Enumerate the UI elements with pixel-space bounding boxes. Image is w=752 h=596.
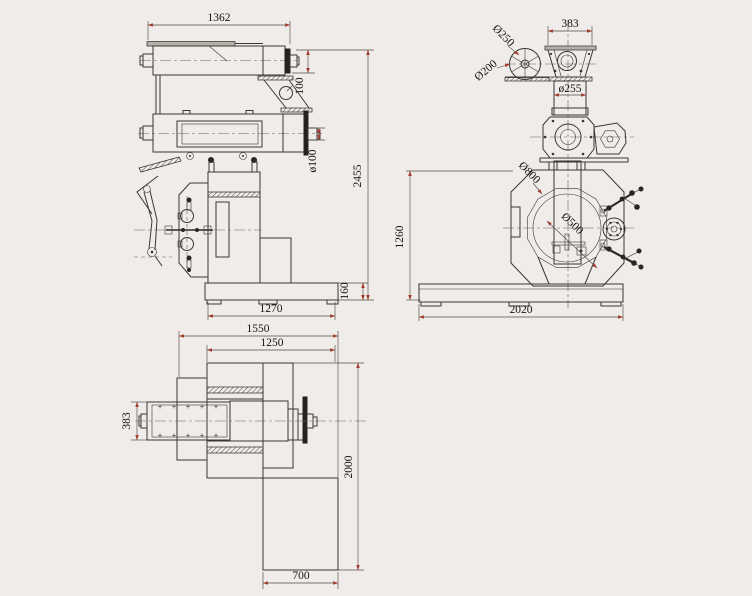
dim-label-160: 160 — [339, 282, 351, 300]
dim-label-1250: 1250 — [261, 337, 284, 349]
background — [0, 0, 752, 596]
dim-label-383-plan: 383 — [121, 412, 133, 430]
dim-label-d100: ø100 — [307, 149, 319, 172]
dim-label-1270: 1270 — [260, 303, 283, 315]
dim-label-1362: 1362 — [208, 12, 231, 24]
dim-label-383-front: 383 — [561, 18, 579, 30]
dim-label-1550: 1550 — [247, 323, 270, 335]
three-view-technical-drawing: 1362 100 — [0, 0, 752, 596]
dim-label-2455: 2455 — [352, 164, 364, 187]
dim-label-700: 700 — [292, 570, 310, 582]
dim-label-2000: 2000 — [343, 455, 355, 478]
dim-label-2020: 2020 — [510, 304, 533, 316]
dim-label-d255: ø255 — [559, 83, 582, 95]
dim-label-1260: 1260 — [394, 225, 406, 248]
dim-chute-diameter: ø255 — [554, 83, 586, 95]
dim-label-100: 100 — [294, 77, 306, 95]
drawing-canvas: 1362 100 — [0, 0, 752, 596]
